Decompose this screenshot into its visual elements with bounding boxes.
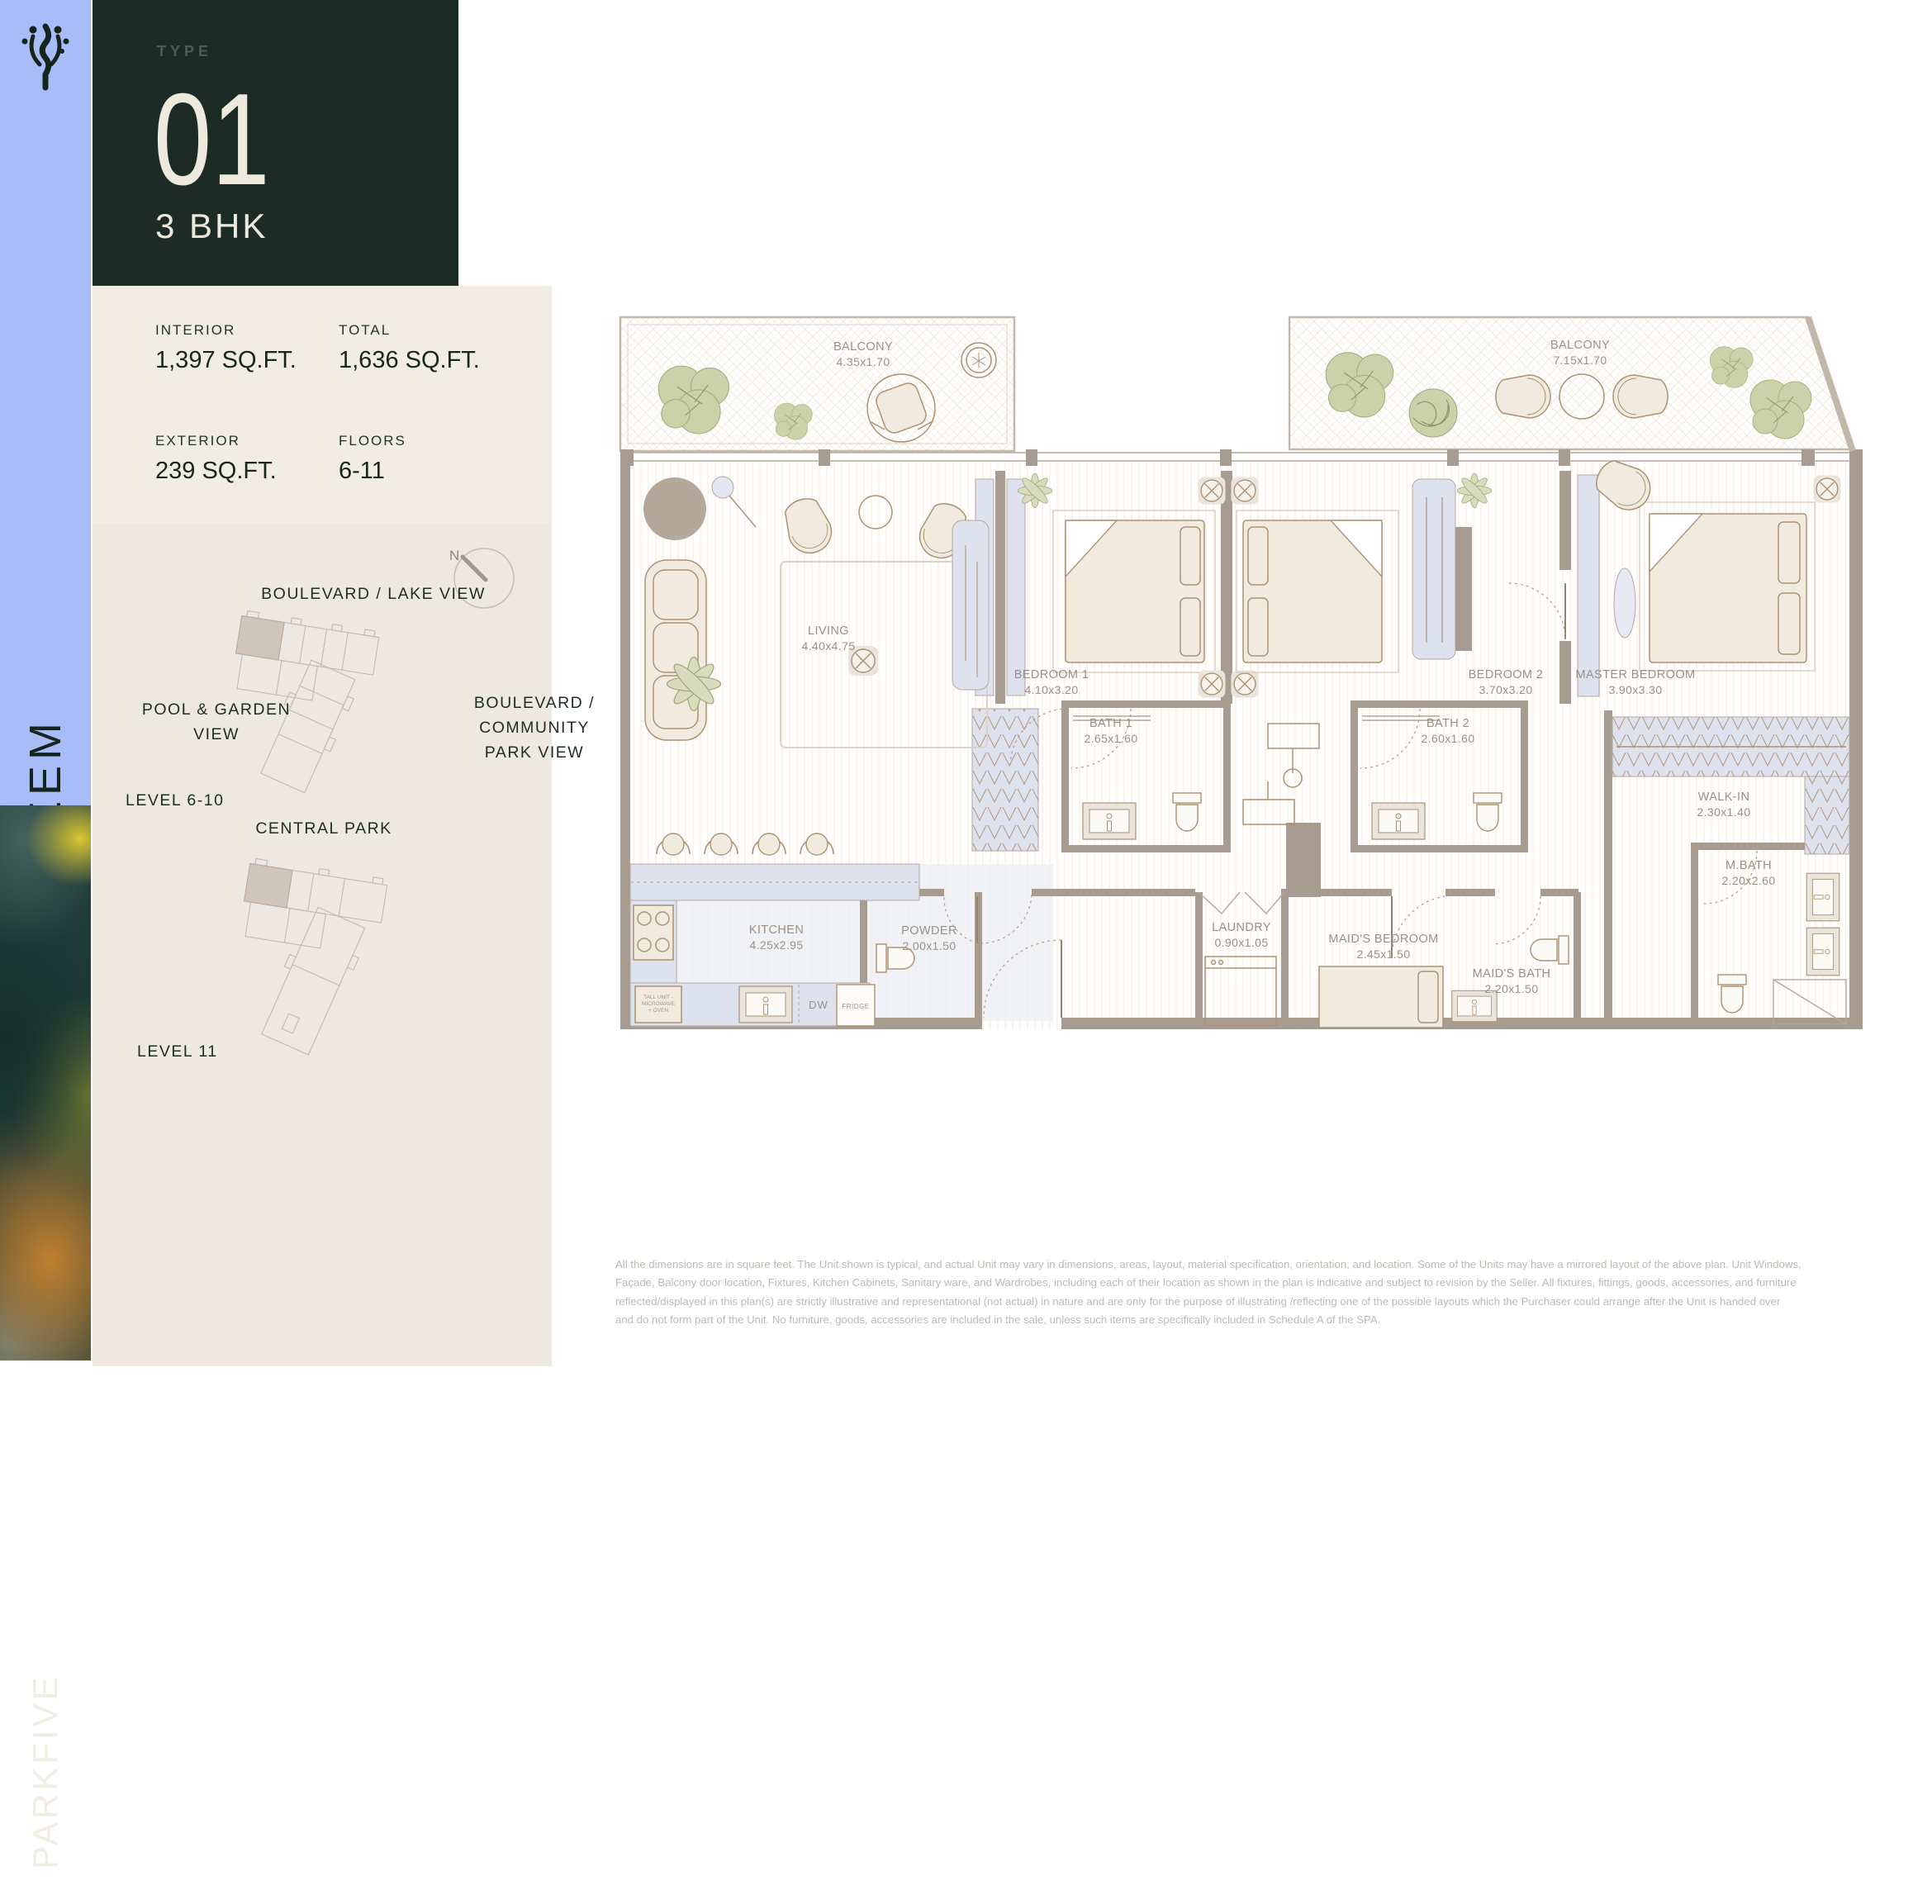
- room-label: BATH 2: [1426, 717, 1469, 730]
- stat-label: INTERIOR: [155, 322, 297, 339]
- bed: [1319, 966, 1443, 1028]
- room-dims: 4.40x4.75: [801, 639, 855, 653]
- brand-band-top: NEEM: [0, 0, 91, 805]
- plant-logo-icon: [18, 20, 73, 91]
- stat-interior: INTERIOR 1,397 SQ.FT.: [155, 322, 297, 374]
- room-label: MASTER BEDROOM: [1576, 668, 1696, 681]
- view-label-top: BOULEVARD / LAKE VIEW: [216, 582, 530, 606]
- room-dims: 3.70x3.20: [1479, 683, 1532, 696]
- room-label: LIVING: [808, 624, 849, 638]
- highlighted-unit: [244, 863, 293, 908]
- level-b-label: LEVEL 11: [137, 1039, 218, 1064]
- info-panel: INTERIOR 1,397 SQ.FT. TOTAL 1,636 SQ.FT.…: [93, 286, 552, 1366]
- room-dims: 2.20x1.50: [1484, 982, 1538, 995]
- svg-text:TALL UNIT -: TALL UNIT -: [643, 995, 673, 1000]
- project-name-vertical: PARKFIVE: [21, 1640, 69, 1904]
- room-dims: 4.35x1.70: [836, 355, 890, 368]
- stat-exterior: EXTERIOR 239 SQ.FT.: [155, 433, 277, 485]
- room-dims: 2.00x1.50: [902, 939, 956, 952]
- disclaimer-line: and do not form part of the Unit. No fur…: [615, 1311, 1904, 1329]
- room-label: BATH 1: [1089, 717, 1132, 730]
- room-dims: 2.65x1.60: [1084, 732, 1137, 745]
- room-label: M.BATH: [1726, 859, 1772, 872]
- room-label: KITCHEN: [749, 924, 804, 937]
- stat-value: 1,636 SQ.FT.: [339, 347, 480, 374]
- view-label-left: POOL & GARDEN VIEW: [117, 697, 316, 747]
- highlighted-unit: [236, 615, 285, 660]
- stat-total: TOTAL 1,636 SQ.FT.: [339, 322, 480, 374]
- unit-header: TYPE 01 3 BHK: [93, 0, 458, 286]
- room-label: BEDROOM 2: [1469, 668, 1544, 681]
- room-dims: 0.90x1.05: [1214, 936, 1268, 949]
- room-dims: 2.60x1.60: [1421, 732, 1474, 745]
- stat-label: EXTERIOR: [155, 433, 277, 449]
- room-dims: 2.45x1.50: [1356, 947, 1410, 961]
- balcony-right: BALCONY 7.15x1.70: [1289, 317, 1851, 449]
- tv-console: [952, 520, 989, 690]
- room-label: MAID'S BEDROOM: [1328, 933, 1438, 946]
- unit-configuration: 3 BHK: [155, 207, 268, 246]
- stat-label: TOTAL: [339, 322, 480, 339]
- brand-band-art: PARKFIVE: [0, 805, 91, 1360]
- stat-value: 1,397 SQ.FT.: [155, 347, 297, 374]
- compass-north-label: N: [449, 548, 459, 563]
- room-label: BEDROOM 1: [1014, 668, 1089, 681]
- room-dims: 2.20x2.60: [1721, 874, 1775, 887]
- view-label-right: BOULEVARD / COMMUNITY PARK VIEW: [439, 691, 629, 765]
- compass: N: [430, 534, 529, 620]
- compass-needle: [463, 557, 486, 580]
- balcony-left: BALCONY 4.35x1.70: [620, 317, 1014, 451]
- fridge-label: FRIDGE: [842, 1003, 869, 1010]
- room-label: POWDER: [901, 924, 957, 938]
- dishwasher-label: DW: [809, 999, 828, 1011]
- central-park-label: CENTRAL PARK: [233, 816, 415, 841]
- type-label: TYPE: [157, 43, 212, 60]
- disclaimer-line: reflected/displayed in this plan(s) are …: [615, 1293, 1904, 1311]
- brochure-page: { "brand": { "logo": "plant-logo", "buil…: [0, 0, 1932, 1366]
- disclaimer-line: Façade, Balcony door location, Fixtures,…: [615, 1274, 1904, 1292]
- building-key-diagram-level-11: [233, 856, 415, 1067]
- room-label: WALK-IN: [1698, 791, 1750, 804]
- room-dims: 2.30x1.40: [1697, 805, 1750, 819]
- room-label: LAUNDRY: [1212, 921, 1271, 934]
- floor-plan: BALCONY 4.35x1.70 BALCONY 7.15x1.70: [615, 314, 1866, 1049]
- level-a-label: LEVEL 6-10: [126, 788, 224, 813]
- round-rug: [643, 477, 706, 540]
- stat-value: 6-11: [339, 458, 406, 485]
- disclaimer: All the dimensions are in square feet. T…: [615, 1256, 1904, 1329]
- sofa: [645, 560, 706, 740]
- svg-text:+ OVEN: + OVEN: [648, 1008, 668, 1014]
- stat-value: 239 SQ.FT.: [155, 458, 277, 485]
- room-label: MAID'S BATH: [1473, 967, 1551, 980]
- room-label: BALCONY: [833, 340, 893, 354]
- room-dims: 4.10x3.20: [1024, 683, 1078, 696]
- room-dims: 4.25x2.95: [749, 938, 803, 952]
- stat-floors: FLOORS 6-11: [339, 433, 406, 485]
- room-dims: 3.90x3.30: [1608, 683, 1662, 696]
- room-label: BALCONY: [1550, 339, 1610, 352]
- svg-text:MICROWAVE: MICROWAVE: [642, 1001, 676, 1007]
- stat-label: FLOORS: [339, 433, 406, 449]
- type-number: 01: [154, 74, 270, 205]
- disclaimer-line: All the dimensions are in square feet. T…: [615, 1256, 1904, 1274]
- room-dims: 7.15x1.70: [1553, 354, 1607, 367]
